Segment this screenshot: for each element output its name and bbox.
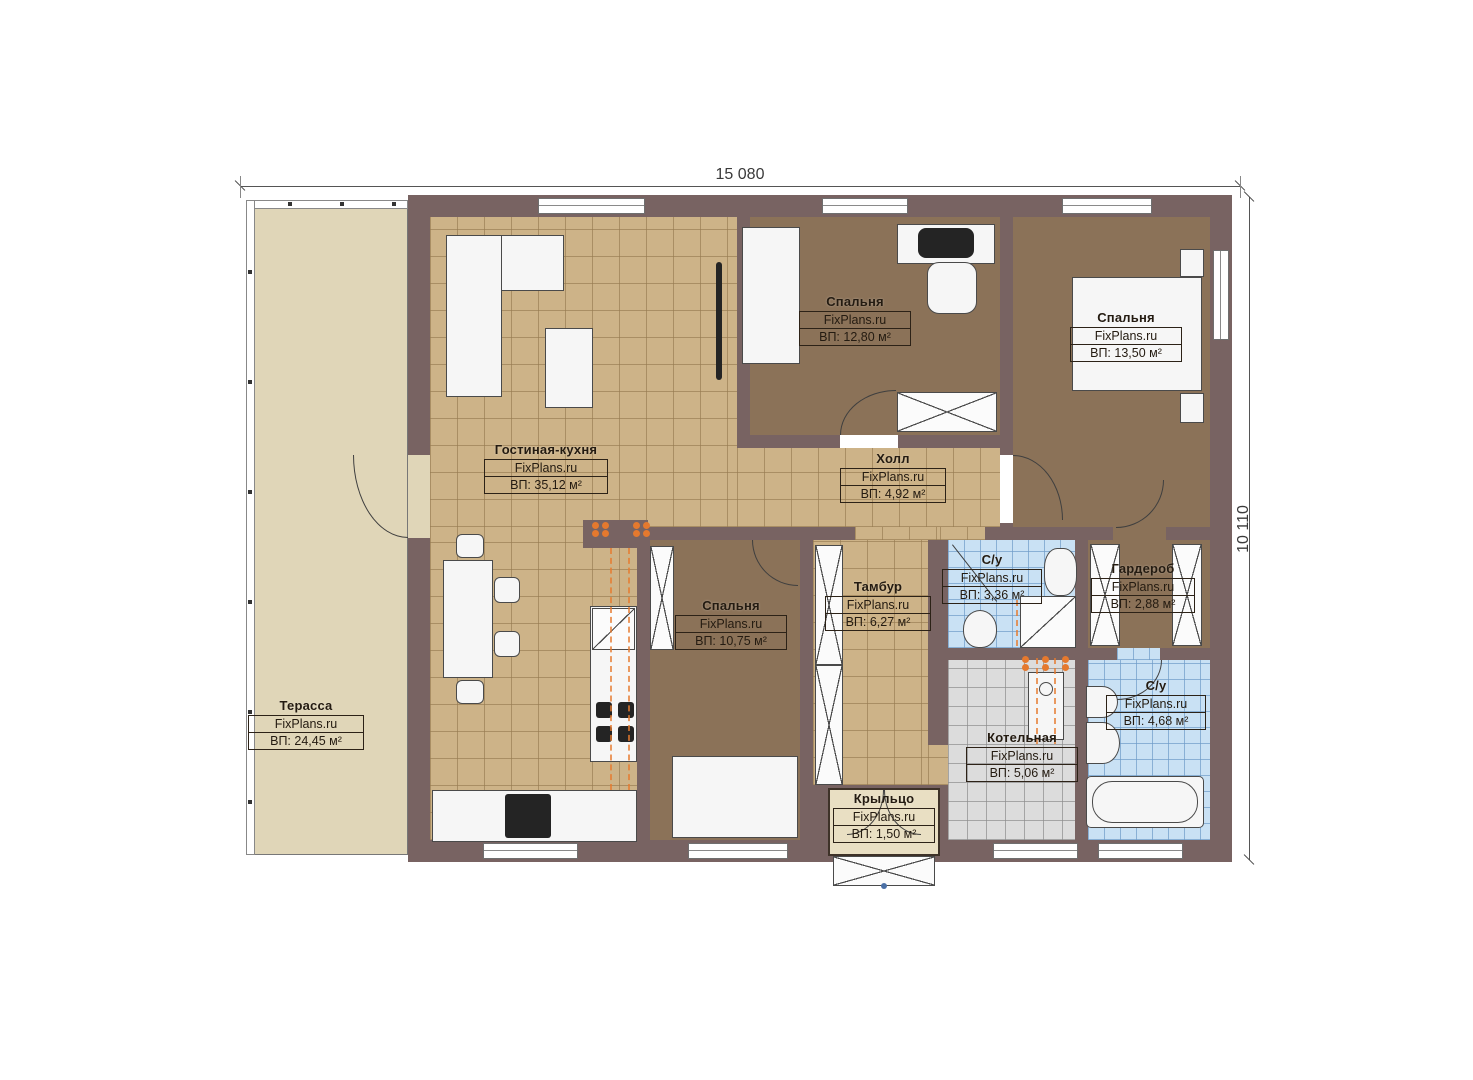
dimension-width-label: 15 080: [716, 166, 765, 184]
wall-bathroom1-wardrobe: [1075, 540, 1088, 648]
room-area: ВП: 2,88 м²: [1092, 596, 1194, 612]
radiator: [602, 522, 609, 529]
room-area: ВП: 4,92 м²: [841, 486, 945, 502]
window: [993, 843, 1078, 859]
room-area: ВП: 1,50 м²: [834, 826, 934, 842]
window: [688, 843, 788, 859]
room-info-box: FixPlans.ru ВП: 5,06 м²: [966, 747, 1078, 782]
dimension-extension: [1240, 176, 1241, 198]
wall-mid-horizontal: [985, 527, 1113, 540]
room-label-bathroom-2: С/у FixPlans.ru ВП: 4,68 м²: [1106, 678, 1206, 730]
watermark: FixPlans.ru: [841, 469, 945, 486]
terrace-post: [392, 202, 396, 206]
wall-bedroom1-hall: [737, 435, 840, 448]
room-area: ВП: 35,12 м²: [485, 477, 607, 493]
room-area: ВП: 6,27 м²: [826, 614, 930, 630]
terrace-post: [248, 490, 252, 494]
room-area: ВП: 10,75 м²: [676, 633, 786, 649]
room-name: Спальня: [799, 294, 911, 309]
watermark: FixPlans.ru: [1092, 579, 1194, 596]
door-gap-wardrobe: [1113, 527, 1166, 540]
room-label-living-kitchen: Гостиная-кухня FixPlans.ru ВП: 35,12 м²: [484, 442, 608, 494]
room-info-box: FixPlans.ru ВП: 2,88 м²: [1091, 578, 1195, 613]
room-name: С/у: [1106, 678, 1206, 693]
room-name: С/у: [942, 552, 1042, 567]
window: [1062, 198, 1152, 214]
porch-step-dot: [881, 883, 887, 889]
heating-pipe: [610, 548, 612, 790]
nightstand: [1180, 393, 1204, 423]
watermark: FixPlans.ru: [1107, 696, 1205, 713]
nightstand: [1180, 249, 1204, 277]
room-info-box: FixPlans.ru ВП: 1,50 м²: [833, 808, 935, 843]
room-info-box: FixPlans.ru ВП: 3,36 м²: [942, 569, 1042, 604]
stove-burner: [618, 702, 634, 718]
dimension-height-label: 10 110: [1235, 505, 1253, 553]
porch-steps: [833, 856, 935, 886]
room-area: ВП: 4,68 м²: [1107, 713, 1205, 729]
dining-table: [443, 560, 493, 678]
terrace-post: [248, 380, 252, 384]
watermark: FixPlans.ru: [485, 460, 607, 477]
window: [483, 843, 578, 859]
room-name: Гостиная-кухня: [484, 442, 608, 457]
radiator: [592, 522, 599, 529]
wall-bedroom1-hall: [898, 435, 1013, 448]
watermark: FixPlans.ru: [967, 748, 1077, 765]
room-name: Гардероб: [1091, 561, 1195, 576]
terrace-post: [248, 270, 252, 274]
room-area: ВП: 5,06 м²: [967, 765, 1077, 781]
wardrobe-cabinet: [650, 546, 674, 650]
room-info-box: FixPlans.ru ВП: 35,12 м²: [484, 459, 608, 494]
room-info-box: FixPlans.ru ВП: 10,75 м²: [675, 615, 787, 650]
room-label-bedroom-3: Спальня FixPlans.ru ВП: 10,75 м²: [675, 598, 787, 650]
room-info-box: FixPlans.ru ВП: 13,50 м²: [1070, 327, 1182, 362]
door-gap-bathroom1: [940, 527, 985, 540]
wardrobe-cabinet: [897, 392, 997, 432]
watermark: FixPlans.ru: [800, 312, 910, 329]
room-name: Крыльцо: [833, 791, 935, 806]
room-name: Котельная: [966, 730, 1078, 745]
room-info-box: FixPlans.ru ВП: 12,80 м²: [799, 311, 911, 346]
coffee-table: [545, 328, 593, 408]
watermark: FixPlans.ru: [826, 597, 930, 614]
room-name: Терасса: [248, 698, 364, 713]
chair: [494, 577, 520, 603]
wall-horizontal-lower: [1160, 648, 1210, 660]
radiator: [1022, 656, 1029, 663]
washbasin: [1044, 548, 1077, 596]
printer: [918, 228, 974, 258]
window: [538, 198, 645, 214]
watermark: FixPlans.ru: [1071, 328, 1181, 345]
room-label-bedroom-1: Спальня FixPlans.ru ВП: 12,80 м²: [799, 294, 911, 346]
room-label-bedroom-2: Спальня FixPlans.ru ВП: 13,50 м²: [1070, 310, 1182, 362]
stove-burner: [618, 726, 634, 742]
window: [1098, 843, 1183, 859]
toilet: [963, 610, 997, 648]
bed: [672, 756, 798, 838]
room-label-terrace: Терасса FixPlans.ru ВП: 24,45 м²: [248, 698, 364, 750]
room-area: ВП: 13,50 м²: [1071, 345, 1181, 361]
room-info-box: FixPlans.ru ВП: 4,92 м²: [840, 468, 946, 503]
room-label-boiler-room: Котельная FixPlans.ru ВП: 5,06 м²: [966, 730, 1078, 782]
boiler-dial: [1039, 682, 1053, 696]
room-label-hall: Холл FixPlans.ru ВП: 4,92 м²: [840, 451, 946, 503]
terrace-edge-top: [246, 200, 408, 209]
tv: [716, 262, 722, 380]
watermark: FixPlans.ru: [676, 616, 786, 633]
room-area: ВП: 3,36 м²: [943, 587, 1041, 603]
door-gap-bathroom2: [1117, 648, 1160, 660]
window: [1213, 250, 1229, 340]
dimension-extension: [240, 176, 241, 198]
heating-pipe: [628, 548, 630, 790]
watermark: FixPlans.ru: [943, 570, 1041, 587]
chair: [456, 680, 484, 704]
terrace-edge-left: [246, 200, 255, 855]
door-gap-terrace: [408, 455, 430, 538]
room-name: Спальня: [675, 598, 787, 613]
room-label-wardrobe: Гардероб FixPlans.ru ВП: 2,88 м²: [1091, 561, 1195, 613]
wall-tambour-boiler: [928, 655, 948, 745]
wall-bedroom3-tambour: [800, 540, 813, 840]
room-name: Спальня: [1070, 310, 1182, 325]
radiator: [633, 522, 640, 529]
chair: [456, 534, 484, 558]
radiator: [1042, 656, 1049, 663]
room-area: ВП: 24,45 м²: [249, 733, 363, 749]
sofa: [446, 235, 502, 397]
room-label-porch: Крыльцо FixPlans.ru ВП: 1,50 м²: [833, 791, 935, 843]
floor-plan: 15 080 10 110: [0, 0, 1473, 1080]
room-info-box: FixPlans.ru ВП: 6,27 м²: [825, 596, 931, 631]
dimension-line-top: [240, 186, 1240, 187]
wall-mid-horizontal: [1166, 527, 1210, 540]
window: [822, 198, 908, 214]
kitchen-sink: [505, 794, 551, 838]
terrace-post: [248, 800, 252, 804]
bathtub-inner: [1092, 781, 1198, 823]
wall-mid-horizontal: [637, 527, 855, 540]
radiator: [1062, 656, 1069, 663]
room-area: ВП: 12,80 м²: [800, 329, 910, 345]
heating-pipe: [1016, 600, 1018, 646]
chair: [494, 631, 520, 657]
passage-hall-tambour: [855, 527, 940, 540]
terrace-post: [248, 600, 252, 604]
terrace-post: [288, 202, 292, 206]
hallway-closet: [815, 665, 843, 785]
door-gap-boiler: [928, 745, 948, 785]
wall-bedroom1-bedroom2: [1000, 217, 1013, 455]
room-info-box: FixPlans.ru ВП: 24,45 м²: [248, 715, 364, 750]
room-label-tambour: Тамбур FixPlans.ru ВП: 6,27 м²: [825, 579, 931, 631]
radiator: [643, 522, 650, 529]
bed: [742, 227, 800, 364]
wall-kitchen-bedroom3: [637, 540, 650, 840]
watermark: FixPlans.ru: [834, 809, 934, 826]
room-name: Тамбур: [825, 579, 931, 594]
desk-chair: [927, 262, 977, 314]
room-info-box: FixPlans.ru ВП: 4,68 м²: [1106, 695, 1206, 730]
watermark: FixPlans.ru: [249, 716, 363, 733]
room-name: Холл: [840, 451, 946, 466]
terrace-post: [340, 202, 344, 206]
room-label-bathroom-1: С/у FixPlans.ru ВП: 3,36 м²: [942, 552, 1042, 604]
